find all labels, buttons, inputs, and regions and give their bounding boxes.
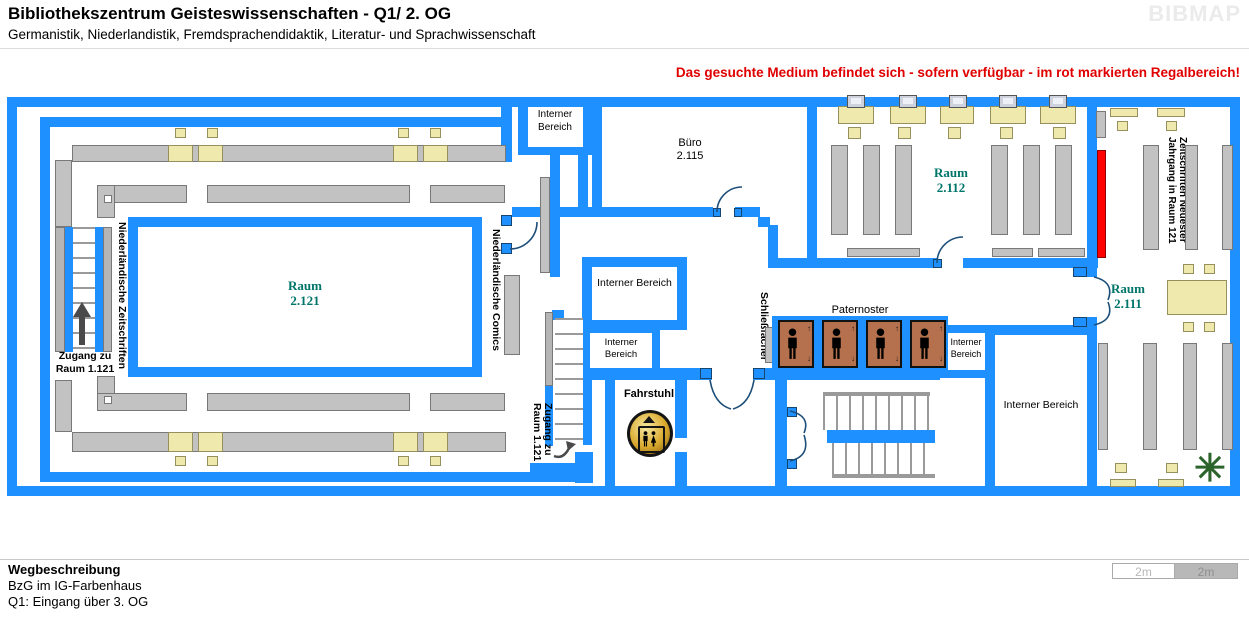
bibmap-logo: BIBMAP	[1148, 1, 1241, 27]
person-icon	[918, 328, 931, 360]
down-arrow-icon: ↓	[807, 355, 811, 363]
paternoster-cell: ↑ ↓	[822, 320, 858, 368]
paternoster-cell: ↑ ↓	[910, 320, 946, 368]
up-arrow-icon: ↑	[895, 325, 899, 333]
table	[1167, 280, 1227, 315]
page-subtitle: Germanistik, Niederlandistik, Fremdsprac…	[8, 27, 535, 42]
header-divider	[0, 48, 1249, 49]
door-arc	[710, 183, 750, 218]
niederlaendische-zeitschriften-label: Niederländische Zeitschriften	[116, 222, 127, 369]
up-arrow-icon: ↑	[939, 325, 943, 333]
curved-arrow-icon	[551, 439, 579, 461]
footer-line2: Q1: Eingang über 3. OG	[8, 594, 148, 609]
room-2112-label: Raum 2.112	[905, 165, 997, 195]
door-arc	[785, 401, 821, 467]
scale-right: 2m	[1175, 563, 1238, 579]
computer-icon	[899, 95, 917, 108]
door-arc	[704, 378, 760, 416]
interner-bereich-label-4: Interner Bereich	[941, 337, 991, 360]
person-icon	[830, 328, 843, 360]
room-buero-label: Büro 2.115	[645, 137, 735, 163]
interner-bereich-label-3: Interner Bereich	[588, 337, 654, 361]
interner-bereich-label-1: Interner Bereich	[524, 109, 586, 134]
door-arc	[930, 230, 970, 270]
scale-bar: 2m 2m	[1112, 563, 1238, 579]
down-arrow-icon: ↓	[939, 355, 943, 363]
computer-icon	[847, 95, 865, 108]
computer-icon	[999, 95, 1017, 108]
computer-icon	[949, 95, 967, 108]
elevator-icon	[627, 410, 673, 457]
interner-bereich-label-5: Interner Bereich	[988, 398, 1094, 412]
computer-icon	[1049, 95, 1067, 108]
highlight-notice: Das gesuchte Medium befindet sich - sofe…	[676, 65, 1240, 80]
down-arrow-icon: ↓	[895, 355, 899, 363]
fahrstuhl-label: Fahrstuhl	[613, 388, 685, 401]
room-2121-label: Raum 2.121	[255, 278, 355, 308]
paternoster-cell: ↑ ↓	[866, 320, 902, 368]
highlighted-shelf	[1097, 150, 1106, 258]
zugang-vertical-label: Zugang zu Raum 1.121	[531, 403, 553, 461]
zugang-label: Zugang zu Raum 1.121	[44, 350, 126, 375]
niederlaendische-comics-label: Niederländische Comics	[490, 229, 501, 351]
page-title: Bibliothekszentrum Geisteswissenschaften…	[8, 4, 451, 24]
stairs-up-arrow-icon	[73, 302, 91, 317]
paternoster-cell: ↑ ↓	[778, 320, 814, 368]
down-arrow-icon: ↓	[851, 355, 855, 363]
door-arc	[506, 216, 546, 256]
person-icon	[786, 328, 799, 360]
door-arc	[1085, 263, 1125, 335]
up-arrow-icon: ↑	[851, 325, 855, 333]
scale-left: 2m	[1112, 563, 1175, 579]
footer-heading: Wegbeschreibung	[8, 562, 120, 577]
person-icon	[874, 328, 887, 360]
interner-bereich-label-2: Interner Bereich	[590, 277, 679, 290]
footer-line1: BzG im IG-Farbenhaus	[8, 578, 142, 593]
footer-divider	[0, 559, 1249, 560]
up-arrow-icon: ↑	[807, 325, 811, 333]
plant-icon: ✳	[1194, 450, 1226, 488]
